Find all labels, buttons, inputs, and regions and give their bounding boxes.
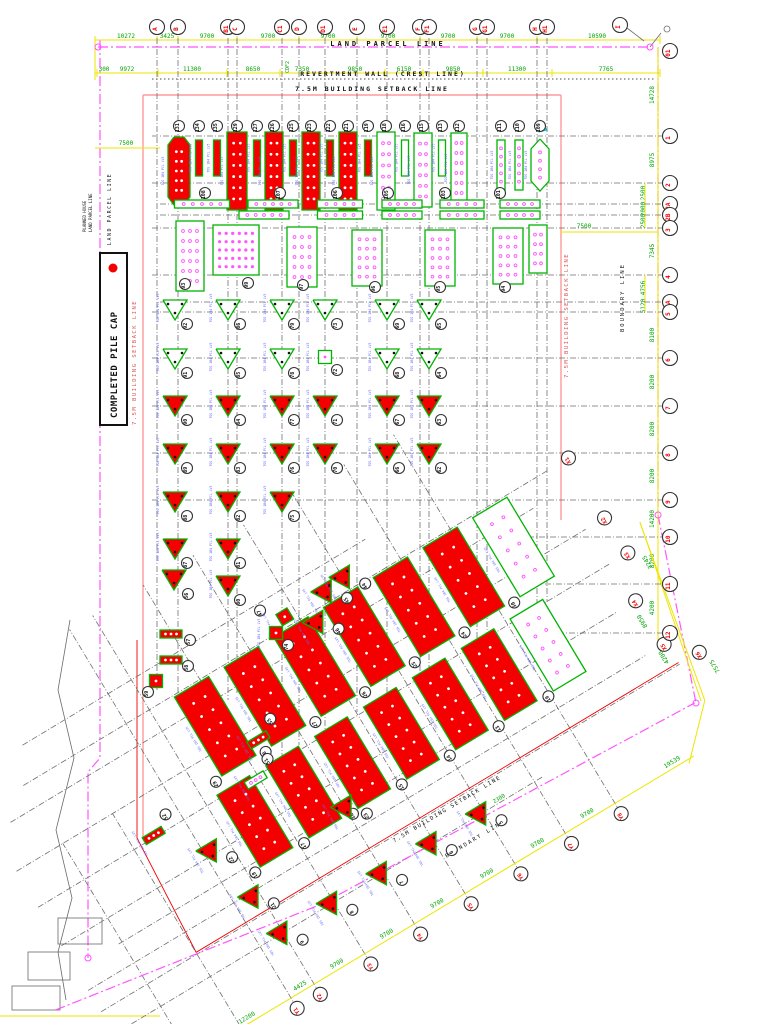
pile-dot: [167, 399, 170, 402]
pile-dot: [175, 179, 178, 182]
dim-text: 5120: [640, 298, 647, 313]
pile-cap-number-bubble-label: 126: [270, 123, 276, 132]
pile-dot: [234, 352, 237, 355]
pile-cap-outline: [168, 137, 190, 205]
dim-text: 7345: [649, 243, 656, 258]
pile-cap-number-bubble-label: 118: [382, 123, 388, 132]
pile-tag: TOS 1B4 PCL LV5: [508, 151, 512, 180]
pile-tag: TOS 1B4 PCL LV5: [368, 390, 372, 419]
pile-cap-number-bubble-label: 73: [333, 323, 339, 329]
grid-bubble-row-9-label: 9: [665, 500, 672, 504]
pile-cap-planned: [451, 133, 467, 203]
pile-dot: [350, 153, 353, 156]
pile-dot: [175, 633, 178, 636]
pile-cap-number-bubble-circle: [395, 872, 410, 887]
pile-dot: [234, 303, 237, 306]
pile-dot: [238, 248, 241, 251]
pile-dot: [218, 240, 221, 243]
pile-cap-number-bubble-label: 94: [501, 286, 507, 292]
pile-cap-planned: [425, 230, 455, 286]
pile-cap-planned: [515, 140, 523, 190]
pile-dot: [155, 680, 158, 683]
pile-cap-number-bubble-circle: [345, 902, 360, 917]
grid-bubble-col-D1-label: D1: [320, 25, 327, 33]
pile-dot: [170, 633, 173, 636]
dim-text: 7500: [119, 140, 134, 147]
pile-dot: [238, 232, 241, 235]
pile-cap-number-bubble-label: 80: [236, 599, 242, 605]
pile-dot: [239, 142, 242, 145]
pile-cap-completed: [302, 132, 320, 210]
revetment-wall-title: REVERTMENT WALL (CREST LINE): [300, 70, 466, 78]
pile-dot: [324, 356, 327, 359]
dim-text: 9700: [579, 807, 595, 821]
grid-bubble-col-H1-label: H1: [542, 25, 549, 33]
pile-dot: [175, 189, 178, 192]
pile-cap-number-bubble-label: 108: [201, 190, 207, 199]
grid-bubble-row-10-label: 10: [665, 535, 672, 543]
pile-dot: [331, 303, 334, 306]
pile-dot: [174, 504, 177, 507]
grid-bubble-col-A-circle: [150, 20, 165, 35]
planned-house-label-1: PLANNED HOUSE: [82, 200, 87, 232]
pile-dot: [181, 352, 184, 355]
pile-dot: [220, 579, 223, 582]
pile-dot: [428, 312, 431, 315]
pile-cap-triangle: [163, 492, 187, 512]
pile-tag: TOS 1B4 PCL LV5: [156, 343, 160, 372]
pile-dot: [175, 160, 178, 163]
pile-dot: [220, 399, 223, 402]
dim-text: 2500: [640, 213, 647, 228]
pile-dot: [220, 447, 223, 450]
pile-tag: TOS 1B4 PCL LV5: [257, 619, 261, 648]
pile-dot: [244, 257, 247, 260]
grid-bubble-row-5-label: 5: [665, 312, 672, 316]
dim-text: 14728: [649, 86, 656, 104]
pile-cap-number-bubble-label: 70: [333, 467, 339, 473]
pile-dot: [234, 542, 237, 545]
pile-tag: TOS 1B4 PCL LV5: [407, 156, 411, 185]
setback-line-left-label: 7.5M BUILDING SETBACK LINE: [132, 300, 138, 425]
pile-cap-number-bubble-label: 56: [184, 593, 190, 599]
pile-dot: [276, 175, 279, 178]
pile-dot: [232, 175, 235, 178]
boundary-line: [658, 47, 696, 703]
pile-dot: [225, 248, 228, 251]
grid-bubble-row-7-label: 7: [665, 406, 672, 410]
pile-cap-planned: [352, 230, 382, 286]
dim-text: CDF2: [285, 61, 291, 73]
pile-cap-number-bubble-label: 74: [284, 644, 290, 650]
pile-dot: [307, 186, 310, 189]
pile-cap-number-bubble-label: 81: [236, 562, 242, 568]
grid-bubble-row-12-label: 12: [665, 631, 672, 639]
pile-cap-number-bubble-label: 78: [290, 372, 296, 378]
dim-text: 9700: [429, 897, 445, 911]
dim-text: 9700: [500, 33, 515, 40]
dim-text: 2300: [492, 793, 506, 805]
pile-dot: [435, 352, 438, 355]
pile-cap-number-bubble-label: 69: [395, 323, 401, 329]
pile-dot: [234, 399, 237, 402]
pile-cap-triangle: [163, 444, 187, 464]
pile-cap-number-bubble-label: 90: [183, 419, 189, 425]
pile-dot: [276, 153, 279, 156]
pile-dot: [225, 265, 228, 268]
pile-cap-triangle: [270, 444, 294, 464]
pile-dot: [180, 170, 183, 173]
pile-cap-number-bubble-label: 85: [236, 372, 242, 378]
pile-dot: [251, 240, 254, 243]
pile-tag: TOS 1B4 PCL LV5: [263, 390, 267, 419]
pile-dot: [379, 399, 382, 402]
pile-cap-triangle: [270, 492, 294, 512]
pile-cap-number-bubble-label: 68: [395, 372, 401, 378]
pile-tag: TOS 1B4 PCL LV5: [156, 390, 160, 419]
dim-text: 8650: [246, 66, 261, 73]
grid-bubble-col-D-circle: [292, 20, 307, 35]
pile-dot: [244, 232, 247, 235]
pile-dot: [270, 153, 273, 156]
grid-bubble-row-7-circle: [663, 399, 678, 414]
dim-text: 2500: [640, 185, 647, 200]
pile-dot: [244, 240, 247, 243]
pile-dot: [281, 312, 284, 315]
grid-bubble-I-label: I: [615, 25, 622, 29]
pile-dot: [181, 542, 184, 545]
pile-dot: [331, 399, 334, 402]
pile-dot: [313, 142, 316, 145]
pile-cap-planned: [175, 200, 230, 208]
pile-cap-planned: [239, 211, 289, 219]
dim-text: 7765: [599, 66, 614, 73]
pile-cap-number-bubble-label: 111: [497, 123, 503, 132]
pile-dot: [421, 352, 424, 355]
pile-dot: [239, 164, 242, 167]
pile-tag: TOS 1B4 PCL LV5: [209, 486, 213, 515]
boundary-line: [56, 620, 74, 1000]
legend-label: COMPLETED PILE CAP: [110, 311, 120, 418]
grid-bubble-row-6-circle: [663, 351, 678, 366]
pile-dot: [281, 408, 284, 411]
pile-cap-triangle: [375, 349, 399, 369]
pile-dot: [175, 659, 178, 662]
pile-dot: [220, 352, 223, 355]
pile-dot: [350, 142, 353, 145]
pile-dot: [393, 303, 396, 306]
pile-cap-number-bubble-label: 103: [441, 190, 447, 199]
pile-dot: [227, 456, 230, 459]
pile-cap-layout-plan: 1027234259700970097009700970097001059030…: [0, 0, 768, 1024]
pile-dot: [331, 447, 334, 450]
pile-dot: [227, 361, 230, 364]
pile-dot: [344, 153, 347, 156]
pile-dot: [231, 257, 234, 260]
pile-cap-triangle: [163, 349, 187, 369]
dim-text: 9700: [441, 33, 456, 40]
pile-cap-planned: [382, 200, 422, 208]
pile-dot: [313, 153, 316, 156]
pile-dot: [166, 573, 169, 576]
pile-dot: [281, 456, 284, 459]
pile-cap-number-bubble-label: 77: [290, 419, 296, 425]
dim-text: 4756: [640, 280, 647, 295]
pile-dot: [218, 265, 221, 268]
pile-tag: TOS 1B4 PCL LV5: [444, 154, 448, 183]
pile-tag: TOS 1B4 PCL LV5: [283, 144, 287, 173]
pile-dot: [421, 303, 424, 306]
pile-dot: [274, 352, 277, 355]
pile-tag: TOS 1B4 PCL LV5: [358, 144, 362, 173]
pile-cap-triangle: [417, 300, 441, 320]
grid-bubble-col-B-circle: [171, 20, 186, 35]
dim-text: 14200: [649, 510, 656, 528]
drawing-page: 1027234259700970097009700970097001059030…: [0, 0, 768, 1024]
pile-dot: [281, 504, 284, 507]
pile-dot: [270, 175, 273, 178]
pile-cap-number-bubble-label: 95: [436, 286, 442, 292]
grid-bubble-col-G1-label: G1: [482, 25, 489, 33]
dim-text: 8950: [636, 613, 650, 629]
pile-dot: [307, 142, 310, 145]
pile-tag: TOS 1B4 PCL LV5: [306, 438, 310, 467]
pile-tag: TOS 1B4 PCL LV5: [209, 343, 213, 372]
pile-dot: [232, 153, 235, 156]
pile-dot: [421, 447, 424, 450]
pile-cap-triangle: [163, 300, 187, 320]
pile-tag: TOS 1B4 PCL LV5: [395, 144, 399, 173]
pile-cap-number-bubble-label: 57: [186, 639, 192, 645]
pile-dot: [232, 142, 235, 145]
pile-dot: [344, 142, 347, 145]
pile-dot: [386, 312, 389, 315]
pile-dot: [386, 361, 389, 364]
pile-tag: TOS 1B4 PCL LV5: [189, 144, 193, 173]
pile-dot: [167, 352, 170, 355]
grid-bubble-col-H-label: H: [532, 27, 539, 31]
grid-bubble-col-B-label: B: [173, 27, 180, 31]
pile-dot: [227, 408, 230, 411]
pile-cap-number-bubble-label: 75: [290, 515, 296, 521]
pile-tag: TOS 1B4 PCL LV5: [263, 343, 267, 372]
pile-cap-planned: [414, 133, 432, 207]
pile-dot: [220, 495, 223, 498]
pile-tag: TOS 1B4 PCL LV5: [332, 157, 336, 186]
dim-text: 7500: [577, 223, 592, 230]
pile-tag: TOS 1B4 PCL LV5: [161, 157, 165, 186]
dim-text: 8200: [649, 421, 656, 436]
pile-dot: [281, 361, 284, 364]
pile-dot: [393, 352, 396, 355]
pile-tag: TOS 1B4 PCL LV5: [156, 294, 160, 323]
pile-tag: TOS 1B4 PCL LV5: [306, 294, 310, 323]
pile-cap-triangle: [313, 300, 337, 320]
grid-bubble-row-9-circle: [663, 493, 678, 508]
pile-dot: [421, 399, 424, 402]
grid-bubble-col-E-label: E: [352, 27, 359, 31]
pile-cap-number-bubble-label: 66: [395, 467, 401, 473]
grid-bubble-col-C-circle: [230, 20, 245, 35]
pile-cap-planned: [382, 211, 422, 219]
pile-tag: TOS 1B4 PCL LV5: [410, 390, 414, 419]
grid-bubble-col-F1-label: F1: [424, 25, 431, 33]
pile-dot: [174, 456, 177, 459]
pile-dot: [244, 248, 247, 251]
pile-cap-planned: [440, 211, 484, 219]
pile-dot: [227, 588, 230, 591]
pile-cap-triangle: [216, 300, 240, 320]
pile-dot: [393, 399, 396, 402]
pile-dot: [180, 189, 183, 192]
pile-dot: [386, 456, 389, 459]
pile-dot: [428, 456, 431, 459]
pile-dot: [225, 257, 228, 260]
pile-dot: [227, 312, 230, 315]
pile-dot: [181, 495, 184, 498]
completed-pile-cap-symbol: [109, 264, 118, 273]
pile-cap-number-bubble-label: 115: [419, 123, 425, 132]
pile-dot: [344, 164, 347, 167]
pile-cap-triangle: [163, 539, 187, 559]
grid-bubble-01-label: 01: [665, 49, 672, 57]
pile-dot: [239, 153, 242, 156]
pile-dot: [225, 240, 228, 243]
pile-dot: [270, 164, 273, 167]
dim-text: 9700: [479, 867, 495, 881]
dim-text: 8975: [649, 152, 656, 167]
pile-cap-number-bubble-label: 122: [326, 123, 332, 132]
pile-cap-triangle: [196, 839, 227, 869]
pile-dot: [231, 240, 234, 243]
pile-cap-number-bubble-label: 105: [384, 190, 390, 199]
pile-cap-number-bubble-label: 99: [244, 282, 250, 288]
pile-cap-number-bubble-label: 87: [183, 562, 189, 568]
pile-cap-number-bubble-label: 62: [437, 467, 443, 473]
pile-tag: TOS 1B4 PCL LV5: [156, 486, 160, 515]
pile-cap-number-bubble-label: 67: [395, 419, 401, 425]
pile-dot: [170, 659, 173, 662]
pile-dot: [232, 197, 235, 200]
pile-dot: [288, 399, 291, 402]
pile-cap-number-bubble-label: 89: [183, 467, 189, 473]
grid-bubble-row-1-circle: [663, 129, 678, 144]
pile-cap-triangle: [216, 576, 240, 596]
grid-bubble-row-4-label: 4: [665, 275, 672, 279]
pile-cap-number-bubble-label: 76: [290, 467, 296, 473]
dim-text: 7575: [708, 658, 722, 674]
pile-cap-number-bubble-label: 116: [401, 123, 407, 132]
pile-cap-triangle: [313, 444, 337, 464]
pile-dot: [167, 447, 170, 450]
pile-cap-number-bubble-label: 109: [536, 123, 542, 132]
pile-dot: [181, 447, 184, 450]
pile-tag: TOS 1B4 PCL LV5: [490, 151, 494, 180]
pile-cap-number-bubble-label: 134: [195, 123, 201, 132]
pile-dot: [173, 582, 176, 585]
pile-dot: [435, 447, 438, 450]
pile-dot: [181, 303, 184, 306]
pile-dot: [232, 186, 235, 189]
dim-text: 11300: [183, 66, 201, 73]
pile-cap-number-bubble-label: 93: [181, 283, 187, 289]
pile-cap-number-bubble-label: 123: [307, 123, 313, 132]
pile-cap-number-bubble-label: 63: [437, 419, 443, 425]
pile-dot: [386, 408, 389, 411]
pile-cap-triangle: [270, 349, 294, 369]
pile-dot: [307, 197, 310, 200]
pile-cap-triangle: [417, 349, 441, 369]
pile-dot: [180, 150, 183, 153]
pile-tag: TOS 1B4 PCL LV5: [209, 533, 213, 562]
pile-dot: [238, 257, 241, 260]
pile-dot: [313, 197, 316, 200]
pile-dot: [181, 399, 184, 402]
grid-bubble-col-E-circle: [350, 20, 365, 35]
pile-dot: [379, 303, 382, 306]
pile-dot: [288, 303, 291, 306]
pile-tag: TOS 1B4 PCL LV5: [156, 438, 160, 467]
grid-bubble-col-C-label: C: [232, 27, 239, 31]
pile-cap-number-bubble-label: 83: [236, 467, 242, 473]
rotated-dim-line: [197, 756, 694, 1024]
pile-dot: [244, 265, 247, 268]
pile-dot: [324, 456, 327, 459]
grid-bubble-row-3-label: 3: [665, 228, 672, 232]
pile-tag: TOS 1B4 PCL LV5: [320, 144, 324, 173]
pile-dot: [175, 150, 178, 153]
pile-cap-planned: [497, 140, 505, 190]
pile-cap-number-bubble-label: 112: [455, 123, 461, 132]
grid-bubble-col-F-label: F: [415, 27, 422, 31]
pile-cap-number-bubble-label: 107: [276, 190, 282, 199]
dim-text: 4200: [649, 600, 656, 615]
pile-dot: [251, 248, 254, 251]
pile-dot: [174, 408, 177, 411]
grid-bubble-row-4-circle: [663, 268, 678, 283]
dim-text: 9700: [329, 957, 345, 971]
pile-dot: [227, 504, 230, 507]
dim-text: 11300: [508, 66, 526, 73]
pile-tag: TOS 1B4 PCL LV5: [209, 438, 213, 467]
grid-bubble-row-5-circle: [663, 305, 678, 320]
pile-dot: [313, 175, 316, 178]
pile-dot: [313, 186, 316, 189]
setback-line-right-label: 7.5M BUILDING SETBACK LINE: [564, 253, 570, 378]
pile-dot: [307, 153, 310, 156]
grid-bubble-col-A-label: A: [152, 27, 159, 31]
pile-cap-number-bubble-label: 92: [183, 323, 189, 329]
pile-cap-planned: [493, 228, 523, 284]
pile-dot: [251, 265, 254, 268]
dim-text: 10272: [117, 33, 135, 40]
pile-dot: [167, 495, 170, 498]
pile-cap-number-bubble-label: 101: [496, 190, 502, 199]
pile-dot: [239, 175, 242, 178]
pile-dot: [238, 240, 241, 243]
pile-dot: [317, 447, 320, 450]
pile-tag: TOS 1B4 PCL LV5: [370, 157, 374, 186]
grid-bubble-col-G-label: G: [472, 27, 479, 31]
pile-dot: [317, 303, 320, 306]
pile-cap-triangle: [417, 444, 441, 464]
pile-cap-number-bubble-label: 135: [213, 123, 219, 132]
pile-cap-number-bubble-label: 119: [364, 123, 370, 132]
pile-dot: [276, 164, 279, 167]
pile-dot: [274, 495, 277, 498]
pile-dot: [379, 447, 382, 450]
pile-dot: [239, 186, 242, 189]
